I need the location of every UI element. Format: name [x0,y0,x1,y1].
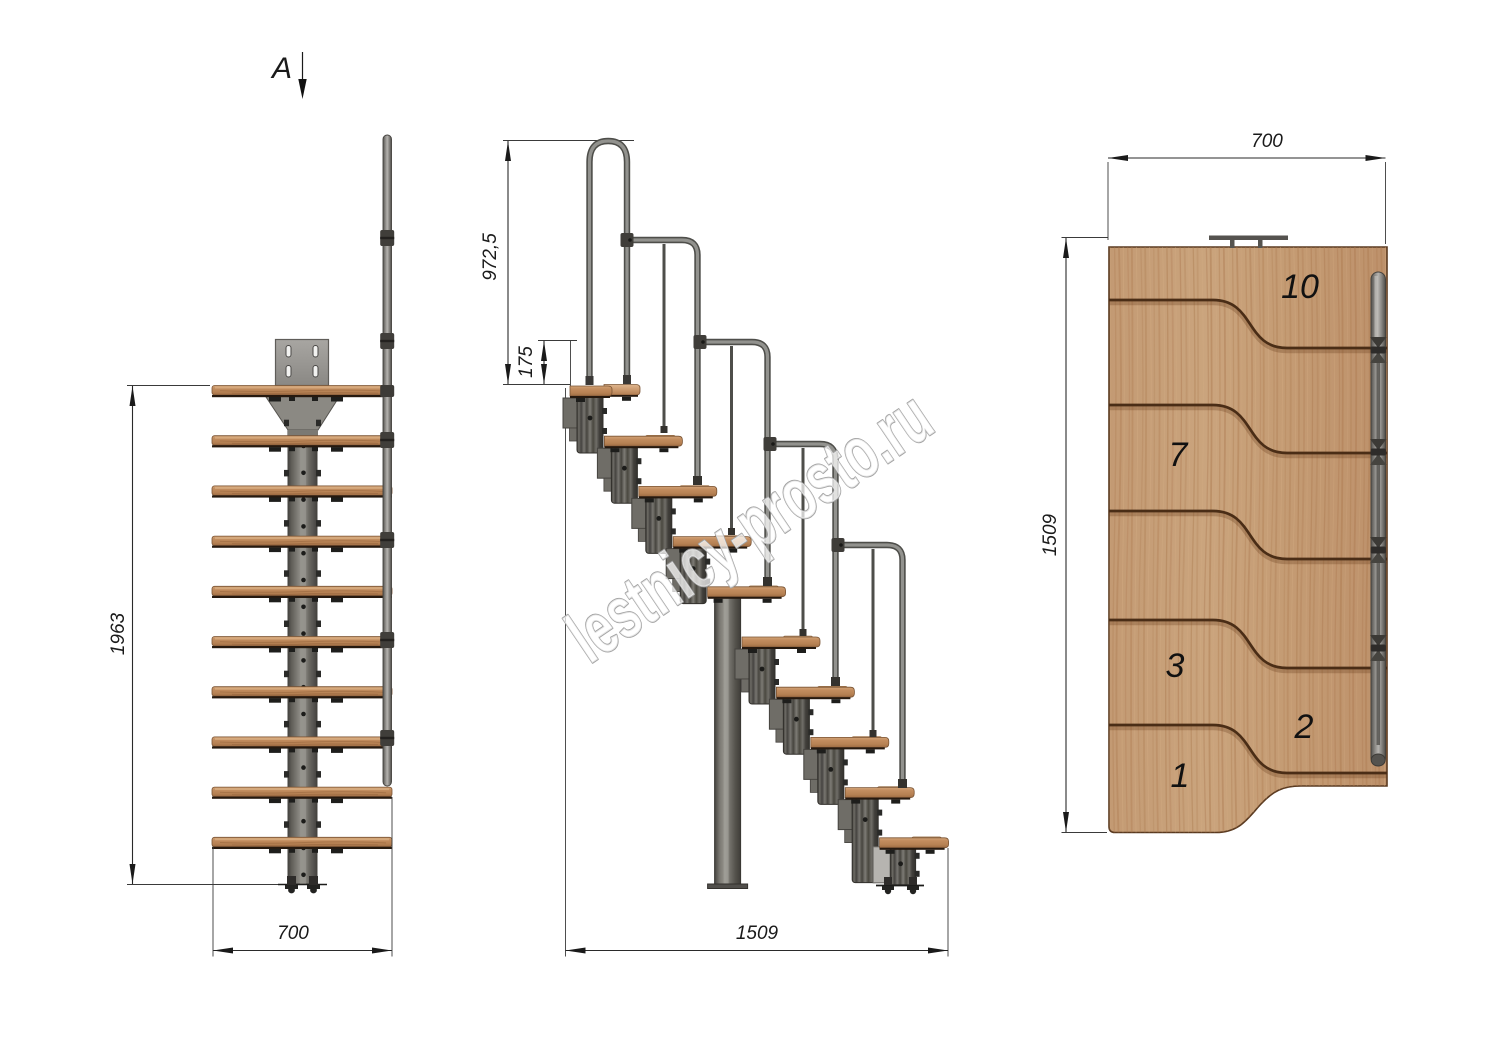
svg-text:1: 1 [1171,757,1190,795]
svg-text:1509: 1509 [1040,513,1061,556]
svg-text:10: 10 [1281,268,1319,306]
svg-text:3: 3 [1166,647,1185,685]
svg-text:1509: 1509 [736,923,779,944]
svg-text:700: 700 [277,923,309,944]
svg-text:A: A [270,52,292,85]
svg-text:175: 175 [516,346,537,378]
svg-text:2: 2 [1294,708,1314,746]
svg-text:7: 7 [1169,436,1189,474]
svg-text:1963: 1963 [108,612,129,655]
svg-text:700: 700 [1251,131,1283,152]
svg-text:972,5: 972,5 [480,233,501,281]
